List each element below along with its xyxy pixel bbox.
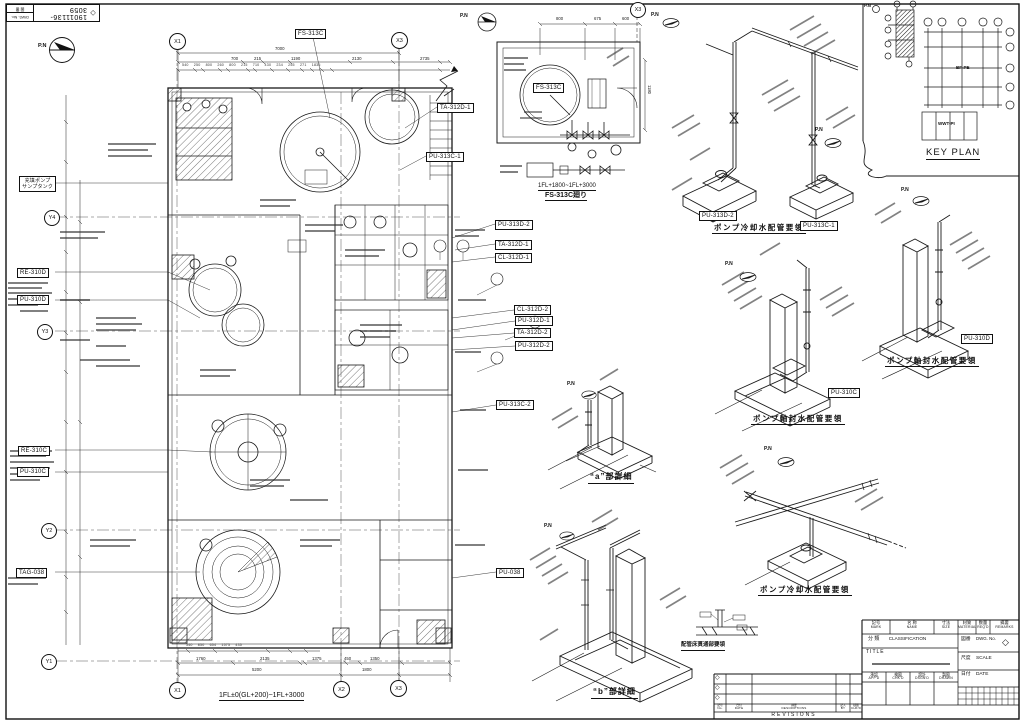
dwg-number-stamp: ◇ 19011136-3059 DWG. No. 図 番 — [6, 4, 100, 22]
grid-label: X1 — [174, 688, 181, 694]
caption-seal-right: ポンプ軸封水配管要領 — [885, 357, 979, 367]
grid-bubble-x3-bottom: X3 — [390, 680, 407, 697]
grid-label: X3 — [396, 38, 403, 44]
tb-en: APP'D — [862, 677, 886, 681]
tb-scale: 尺度 SCALE — [961, 657, 992, 662]
north-label-iso2: P.N — [725, 262, 733, 267]
rev-revisions-label: REVISIONS — [752, 713, 836, 718]
label-pu038: PU-038 — [496, 568, 524, 578]
dim-detail: 675 — [594, 17, 601, 21]
stamp-zuban-label: 図 番 — [7, 5, 33, 13]
label-ta312d2: TA-312D-2 — [514, 328, 551, 338]
grid-label: Y4 — [49, 215, 56, 221]
grid-bubble-x3-detail: X3 — [630, 2, 646, 18]
iso-detail-b — [530, 510, 692, 702]
dim-sub-row-bottom: 340 850 654 1575 435 — [186, 644, 242, 648]
tb-en: NAME — [890, 626, 934, 630]
north-compass-icon — [49, 38, 75, 63]
caption-cooling-bottom: ポンプ冷却水配管要領 — [758, 586, 852, 596]
tb-en: DATE — [976, 672, 988, 677]
tb-jp: 日付 — [961, 672, 971, 677]
stamp-diamond-icon: ◇ — [87, 5, 99, 21]
dim-seg: 1350 — [370, 657, 380, 661]
grid-bubble-x3-top: X3 — [391, 32, 408, 49]
grid-bubble-x1-top: X1 — [169, 33, 186, 50]
label-line: サンプタンク — [22, 184, 53, 190]
label-re310d: RE-310D — [17, 268, 49, 278]
dim-seg: 2130 — [352, 57, 362, 61]
key-plan-title: KEY PLAN — [926, 148, 980, 160]
caption-detail-b: “b”部詳細 — [591, 688, 638, 699]
tb-jp: 尺度 — [961, 656, 971, 661]
iso-seal-left — [715, 243, 854, 431]
dim-seg: 1760 — [196, 657, 206, 661]
grid-bubble-y1: Y1 — [41, 654, 57, 670]
rev-mark-icon: ◇ — [715, 685, 720, 691]
north-label-iso4: P.N — [567, 382, 575, 387]
grid-label: X3 — [635, 7, 642, 13]
label-pu312d2: PU-312D-2 — [515, 341, 553, 351]
tb-dwg-no: 図番 DWG. No. — [961, 637, 996, 643]
rev-mark-icon: ◇ — [715, 675, 720, 681]
label-pu313c2: PU-313C-2 — [496, 400, 534, 410]
dim-seg: 1375 — [312, 657, 322, 661]
dim-total-7000: 7000 — [275, 47, 285, 51]
dim-total-1800: 1800 — [362, 668, 372, 672]
label-tag038: TAG-038 — [16, 568, 47, 578]
rev-col-no: 記号No. — [714, 704, 726, 711]
tb-jp: 分 類 — [868, 636, 879, 642]
grid-label: Y3 — [42, 329, 49, 335]
north-label-iso6: P.N — [764, 447, 772, 452]
grid-label: X3 — [395, 686, 402, 692]
label-cl312d2: CL-312D-2 — [514, 305, 551, 315]
detail-fs313c-linework — [478, 13, 647, 177]
label-pu313d2-plan: PU-313D-2 — [495, 220, 533, 230]
north-label-iso5: P.N — [544, 524, 552, 529]
tb-en: SIZE — [934, 626, 958, 630]
caption-cooling-top: ポンプ冷却水配管要領 — [712, 224, 806, 234]
label-ta312d1-detail: TA-312D-1 — [437, 103, 474, 113]
label-cl312d1: CL-312D-1 — [495, 253, 532, 263]
tb-en: REQ'D — [976, 626, 990, 630]
label-pu313c1-plan: PU-313C-1 — [426, 152, 464, 162]
tb-en: DRAWN — [934, 677, 958, 681]
tb-en: BY — [836, 707, 850, 710]
tb-sign-drawn: 製図DRAWN — [934, 673, 958, 681]
iso-cooling-top — [663, 16, 858, 222]
drawing-linework — [0, 0, 1024, 724]
grid-bubble-x2-bottom: X2 — [333, 681, 350, 698]
stamp-dwg-label: DWG. No. — [7, 13, 33, 22]
dim-detail: 600 — [622, 17, 629, 21]
tb-parts-mark: 記号MARK — [862, 621, 890, 630]
dim-seg: 2735 — [420, 57, 430, 61]
grid-bubble-y4: Y4 — [44, 210, 60, 226]
dim-seg: 450 — [344, 657, 351, 661]
label-fs313c-detail: FS-313C — [533, 83, 564, 93]
label-pu313d2-iso: PU-313D-2 — [699, 211, 737, 221]
label-pu310d-iso: PU-310D — [961, 334, 993, 344]
dim-detail: 800 — [556, 17, 563, 21]
north-label-keyplan: P.N — [864, 4, 871, 9]
dim-seg: 1190 — [291, 57, 300, 61]
tb-en: DATE — [726, 707, 752, 710]
tb-en: CHK'D — [850, 707, 862, 710]
tb-en: DWG. No. — [976, 636, 996, 641]
tb-en: REMARKS — [990, 626, 1019, 630]
dim-seg: 2135 — [260, 657, 270, 661]
iso-detail-a — [548, 369, 656, 489]
dim-seg: 700 — [231, 57, 238, 61]
plan-level-caption: 1FL±0(GL+200)~1FL+3000 — [219, 692, 304, 701]
illegible-micro-labels — [8, 58, 528, 584]
grid-bubble-x1-bottom: X1 — [169, 682, 186, 699]
label-pu312d1: PU-312D-1 — [515, 316, 553, 326]
label-pu310c: PU-310C — [17, 467, 49, 477]
tb-parts-size: 寸法SIZE — [934, 621, 958, 630]
iso-cooling-bottom — [720, 455, 906, 589]
rev-col-chkd: 検図CHK'D — [850, 704, 862, 711]
tb-sign-chkd: 検図CHK'D — [886, 673, 910, 681]
tb-parts-remarks: 摘要REMARKS — [990, 621, 1019, 630]
tb-en: MARK — [862, 626, 890, 630]
tb-revision-diamond-icon: ◇ — [1002, 638, 1009, 647]
tb-parts-name: 名 称NAME — [890, 621, 934, 630]
tb-en: CHK'D — [886, 677, 910, 681]
grid-bubble-y2: Y2 — [41, 523, 57, 539]
drawing-sheet: ◇ 19011136-3059 DWG. No. 図 番 P.N P.N P.N… — [0, 0, 1024, 724]
label-ta312d1-plan: TA-312D-1 — [495, 240, 532, 250]
label-fill-pump-sump-tank: 充填ポンプ サンプタンク — [19, 176, 56, 192]
tb-title-label: TITLE — [866, 650, 885, 655]
rev-col-descriptions: 摘要DESCRIPTIONS — [752, 704, 836, 711]
detail-caption-level: 1FL+1800~1FL+3000 — [538, 183, 596, 191]
sheet-border — [6, 4, 1019, 719]
rev-col-by: 記入BY — [836, 704, 850, 711]
caption-seal-left: ポンプ軸封水配管要領 — [751, 415, 845, 425]
tb-en: No. — [714, 707, 726, 710]
tb-classification: 分 類 CLASSIFICATION — [868, 637, 926, 642]
tb-en: SCALE — [976, 656, 992, 661]
grid-label: Y2 — [46, 528, 53, 534]
tb-en: DSGN'D — [910, 677, 934, 681]
iso-seal-right — [862, 197, 990, 380]
rev-mark-icon: ◇ — [715, 695, 720, 701]
key-plan-wwtpi: WWT-PI — [938, 122, 955, 127]
grid-label: X2 — [338, 687, 345, 693]
north-label-iso3: P.N — [901, 188, 909, 193]
label-pu313c1-iso: PU-313C-1 — [800, 221, 838, 231]
label-pu310c-iso: PU-310C — [828, 388, 860, 398]
dim-detail-height: 1180 — [647, 85, 651, 94]
dimension-lines — [64, 46, 452, 682]
tb-sign-appd: 承認APP'D — [862, 673, 886, 681]
grid-label: X1 — [174, 39, 181, 45]
north-label-iso1b: P.N — [815, 128, 823, 133]
tb-sign-dsgnd: 設計DSGN'D — [910, 673, 934, 681]
north-label-iso1a: P.N — [651, 13, 659, 18]
tb-en: MATERIAL — [958, 626, 976, 630]
dim-total-5200: 5200 — [252, 668, 262, 672]
grid-label: Y1 — [46, 659, 53, 665]
rev-col-date: 日付DATE — [726, 704, 752, 711]
floor-penetration-sketch — [696, 610, 758, 635]
north-label-detail: P.N — [460, 14, 468, 19]
tb-en: CLASSIFICATION — [889, 636, 926, 641]
dim-seg: 215 — [254, 57, 261, 61]
detail-caption-title: FS-313C廻り — [545, 192, 587, 201]
stamp-dwg-number: 19011136-3059 — [34, 5, 87, 21]
grid-bubble-y3: Y3 — [37, 324, 53, 340]
label-pu310d: PU-310D — [17, 295, 49, 305]
key-plan-bfpe: BF-PE — [956, 66, 970, 71]
tb-date: 日付 DATE — [961, 673, 988, 678]
caption-floor-penetration: 配管床貫通部要領 — [681, 643, 725, 651]
leader-lines — [53, 37, 515, 578]
north-label: P.N — [38, 44, 46, 50]
dim-sub-row-top: 540 250 800 260 800 215 710 430 234 255 … — [182, 64, 321, 68]
tb-jp: 図番 — [961, 637, 971, 642]
tb-en: DESCRIPTIONS — [752, 707, 836, 710]
label-re310c: RE-310C — [18, 446, 50, 456]
label-fs313c-plan: FS-313C — [295, 29, 326, 39]
caption-detail-a: “a”部詳細 — [588, 473, 634, 484]
tb-parts-qty: 数量REQ'D — [976, 621, 990, 630]
tb-parts-material: 材質MATERIAL — [958, 621, 976, 630]
